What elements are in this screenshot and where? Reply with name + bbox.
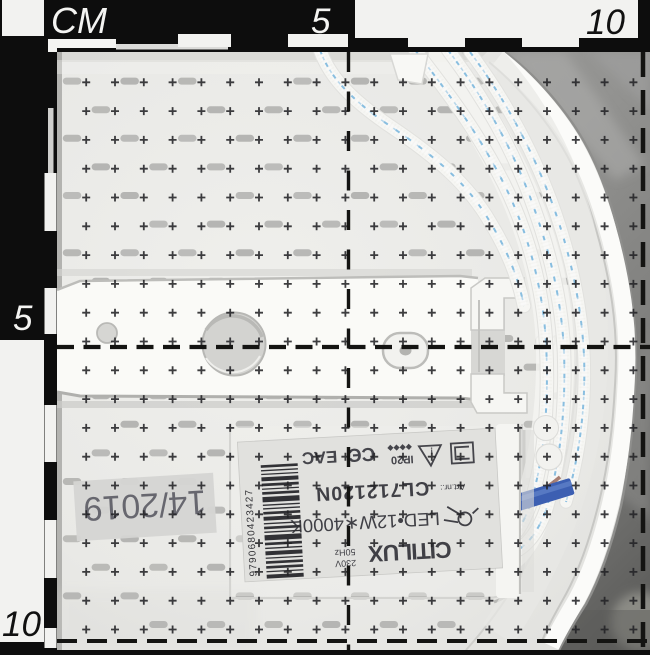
svg-text:14/2019: 14/2019 [82, 482, 207, 527]
svg-text:10: 10 [2, 605, 41, 644]
svg-text:5: 5 [311, 2, 331, 41]
svg-text:10: 10 [586, 3, 625, 42]
svg-text:◆◆◆◆: ◆◆◆◆ [386, 443, 412, 453]
svg-text:Art.nr.:: Art.nr.: [440, 482, 466, 493]
svg-text:230V: 230V [335, 558, 357, 569]
svg-text:CM: CM [51, 0, 107, 41]
svg-text:5: 5 [13, 299, 33, 338]
svg-text:CЄ: CЄ [347, 443, 376, 465]
svg-text:50Hz: 50Hz [334, 547, 356, 558]
svg-text:CITILUX: CITILUX [367, 537, 452, 568]
